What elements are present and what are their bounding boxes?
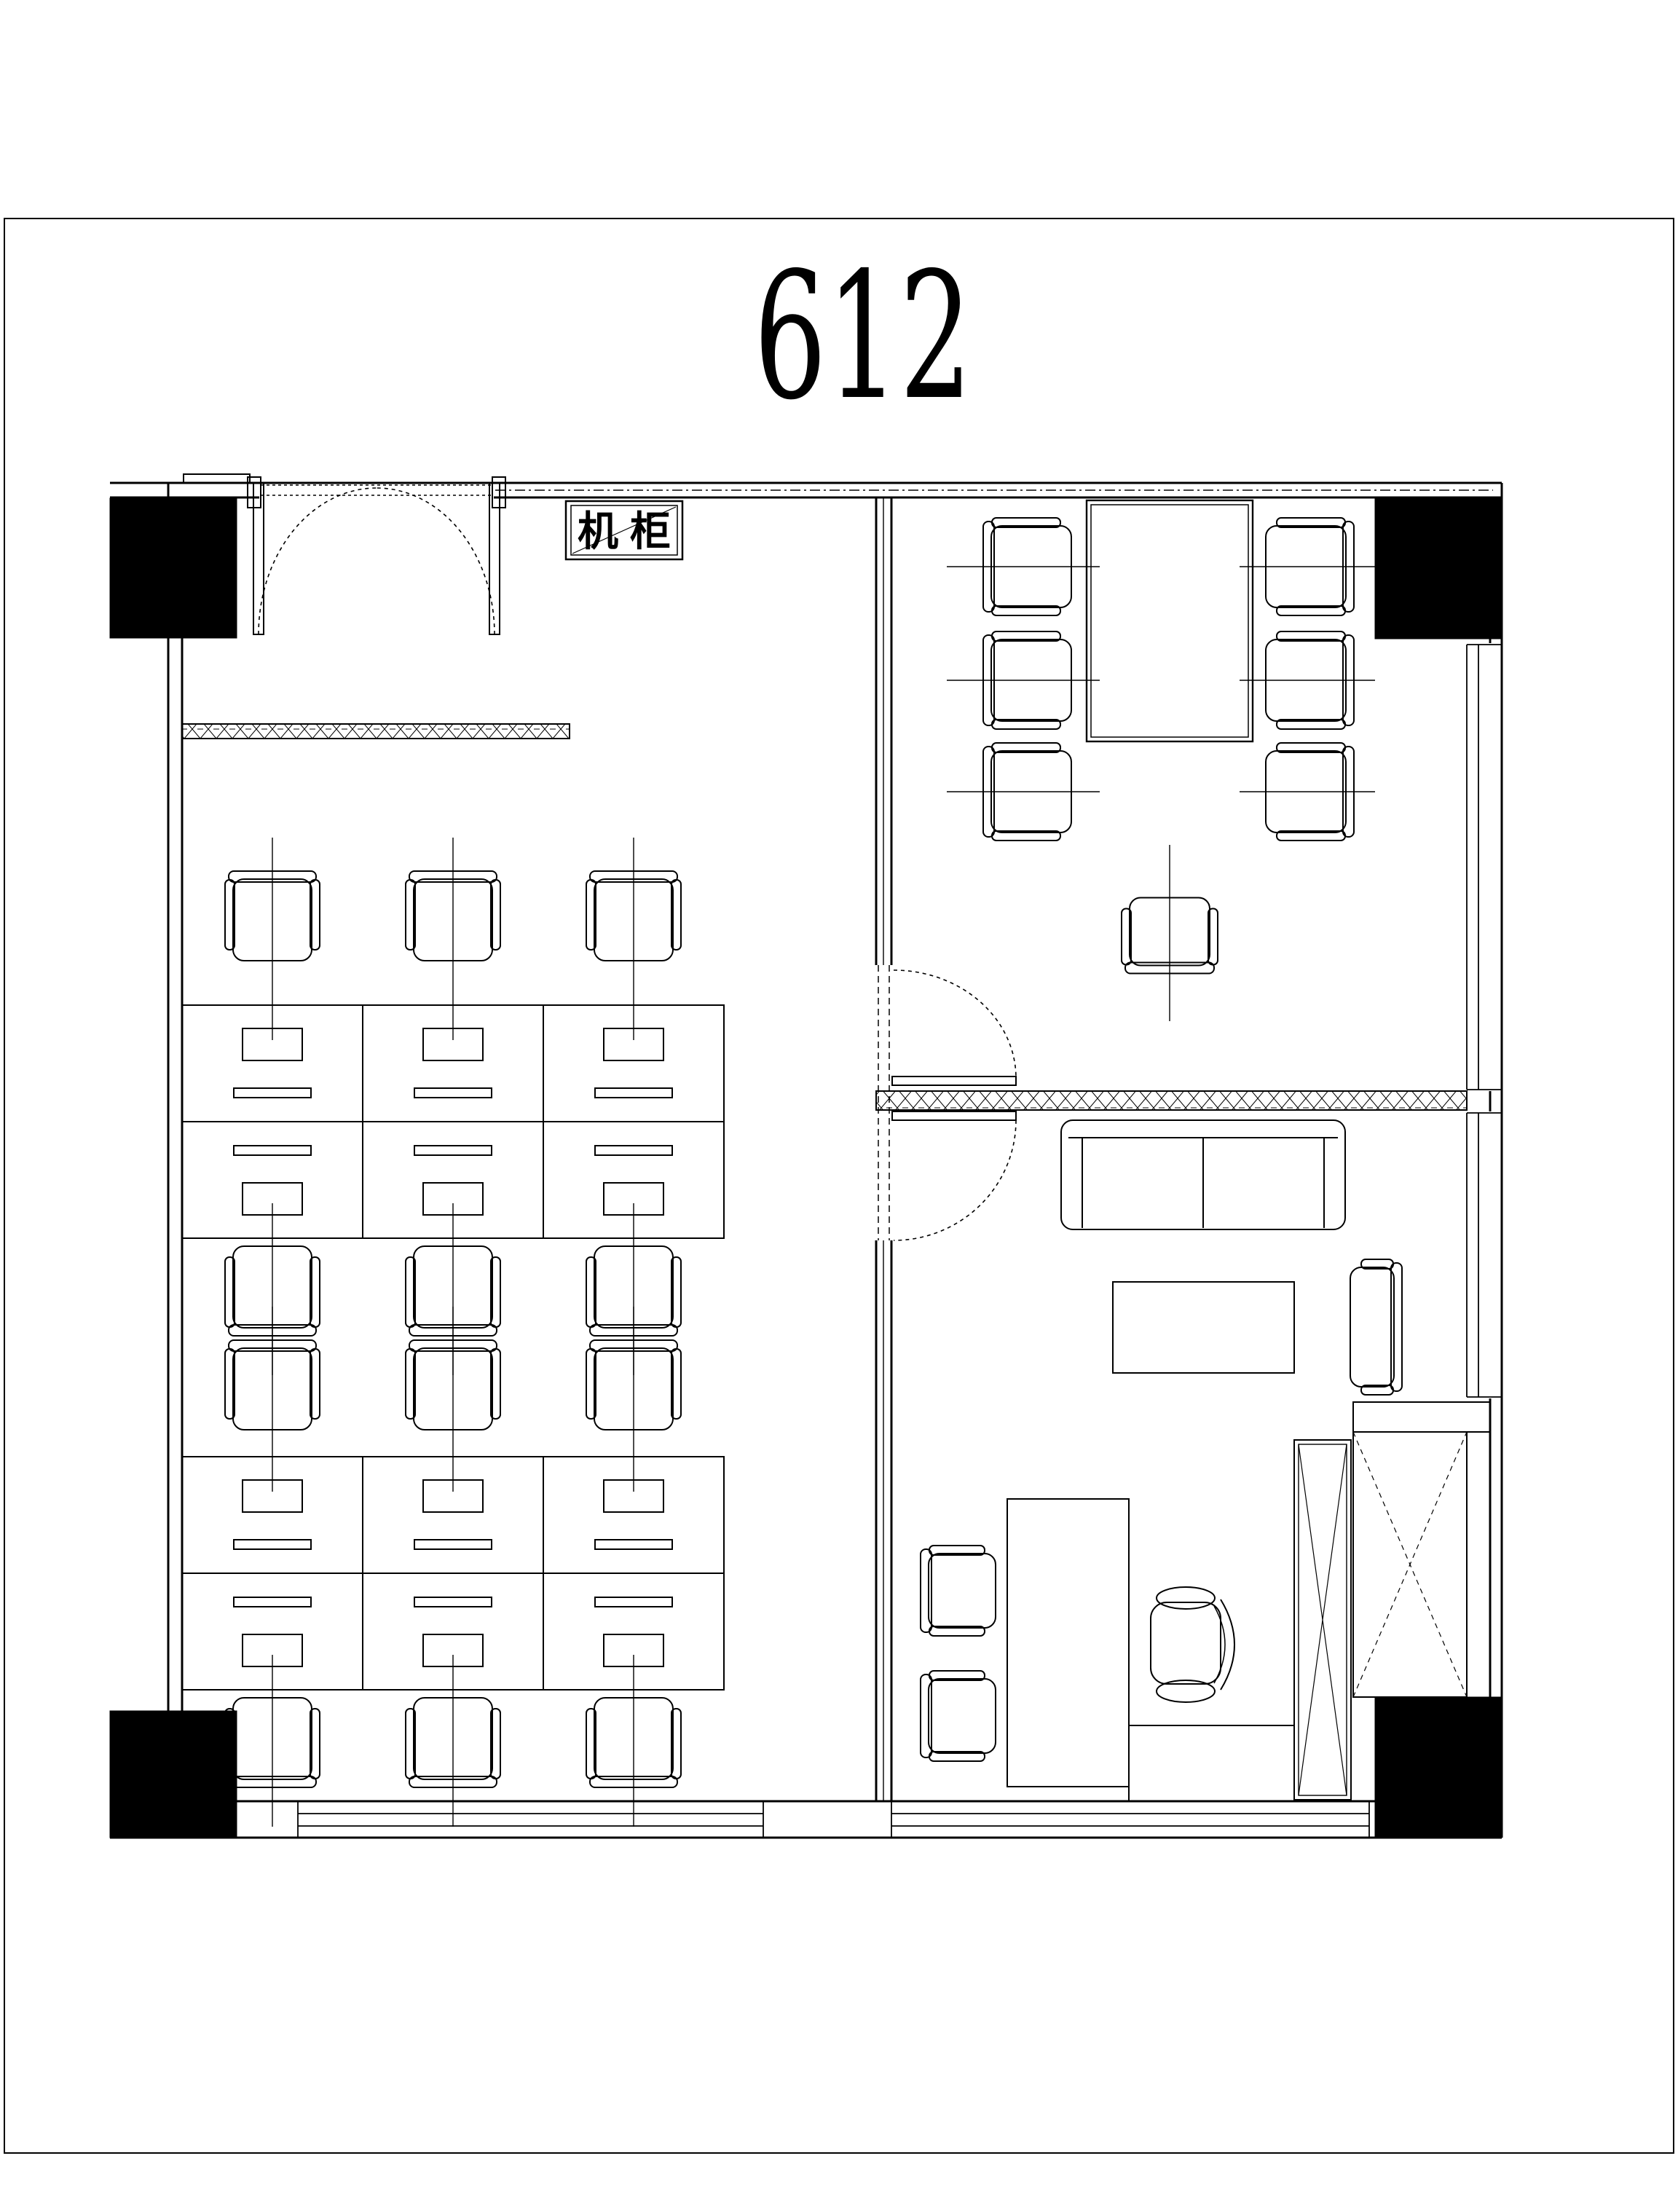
column — [1375, 1697, 1502, 1838]
drawing-sheet: 612 机柜 — [0, 0, 1678, 2212]
column — [1375, 498, 1502, 639]
column — [110, 498, 237, 638]
floor-plan-612: 612 机柜 — [0, 0, 1678, 2212]
column — [110, 1711, 237, 1838]
room-number-title: 612 — [754, 235, 972, 438]
